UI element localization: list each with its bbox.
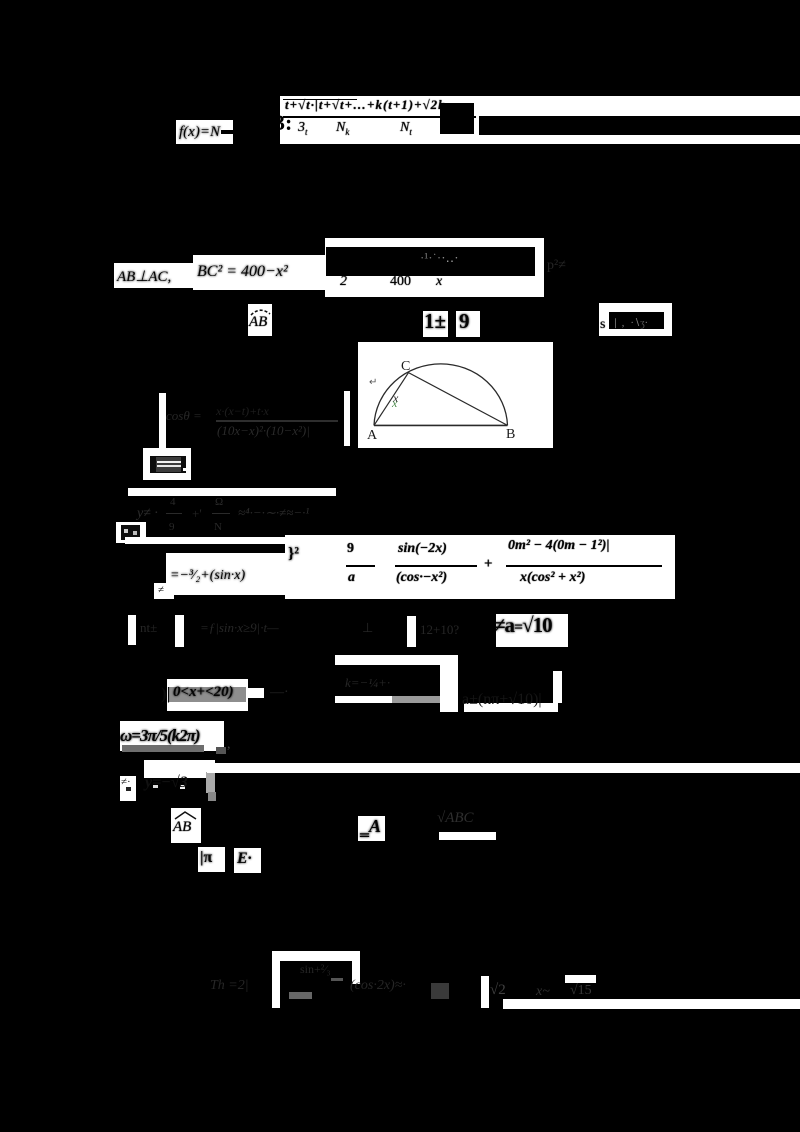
svg-text:↵: ↵ <box>369 377 377 388</box>
svg-text:x: x <box>391 396 398 410</box>
svg-text:B: B <box>506 427 515 442</box>
svg-text:A: A <box>367 428 378 443</box>
svg-text:C: C <box>401 359 410 374</box>
